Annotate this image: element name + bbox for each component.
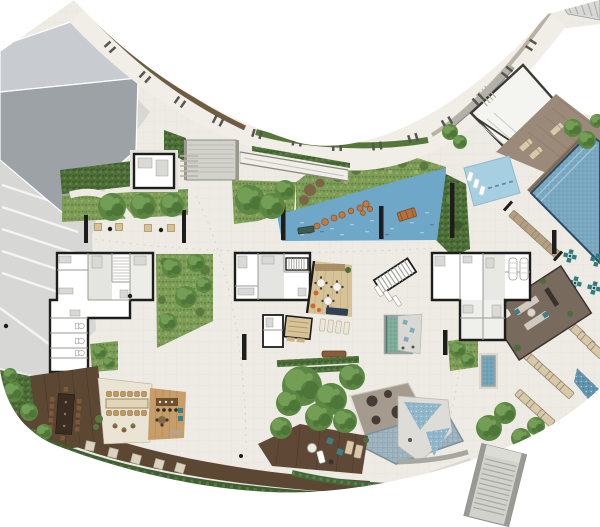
reception-counter bbox=[315, 264, 345, 271]
unit-plans-center bbox=[235, 253, 310, 300]
lobby bbox=[307, 261, 352, 317]
pond-wall bbox=[450, 183, 455, 238]
plunge-pool-right bbox=[479, 353, 498, 389]
party-long-table bbox=[106, 399, 148, 408]
bar-table bbox=[158, 416, 166, 424]
gray-mosaic-deck-mid bbox=[398, 314, 422, 354]
round-chair bbox=[308, 444, 317, 453]
garden-bench bbox=[322, 351, 346, 357]
site-plan-page bbox=[0, 0, 600, 527]
site-plan-svg bbox=[0, 0, 600, 527]
pond-wall bbox=[379, 206, 384, 239]
